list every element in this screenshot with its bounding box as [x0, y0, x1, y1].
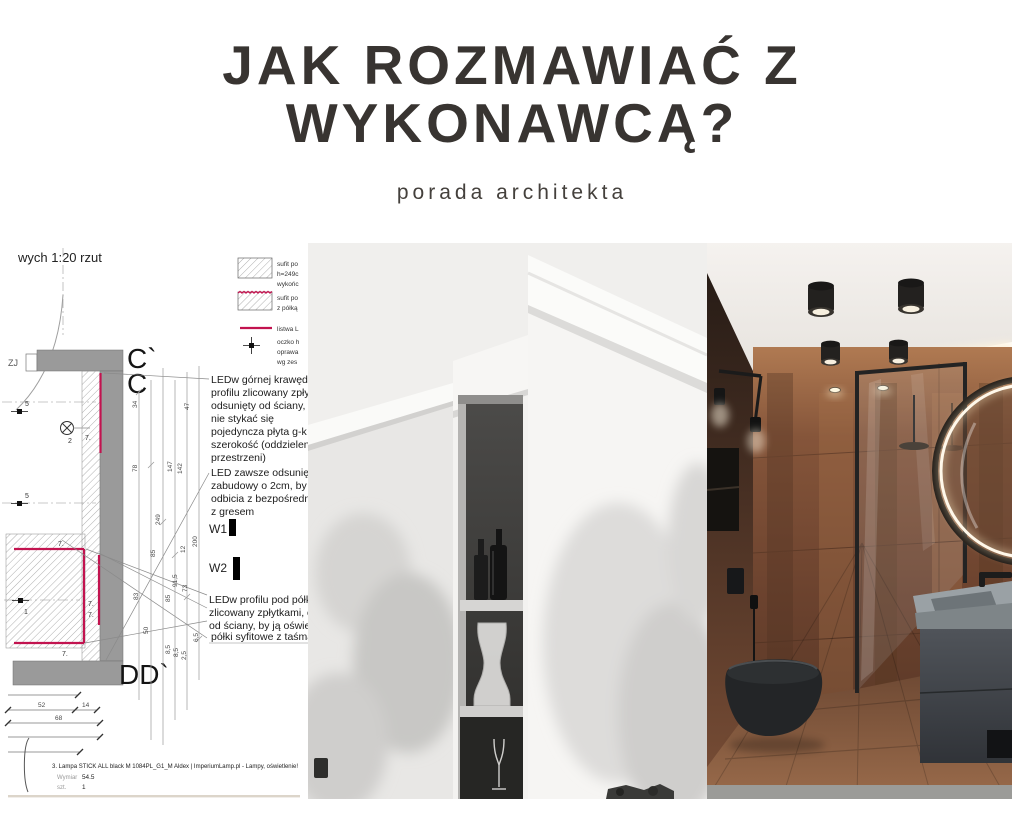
vanity-unit [913, 572, 1012, 763]
ceiling-plan-drawing: wych 1:20 rzut sufit po h=249c wykońc su… [0, 240, 310, 800]
note2-l3: odbicia z bezpośredni [211, 493, 310, 505]
dim-85a: 85 [150, 549, 157, 557]
shelf-board-2 [460, 706, 523, 717]
dim-2-5: 2,5 [181, 651, 188, 660]
dim-147: 147 [167, 461, 174, 472]
annotation-note-3: LEDw profilu pod półką, zlicowany zpłytk… [209, 594, 310, 643]
ceiling-spotlight-1 [808, 282, 834, 318]
caption-qty-value: 1 [82, 784, 86, 791]
tile-label-4: 7. [88, 612, 94, 619]
legend-item1-l2: h=249c [277, 271, 299, 278]
dim-8-5a: 8,5 [165, 645, 172, 654]
dim-83: 83 [133, 592, 140, 600]
lamp-label: 2 [68, 438, 72, 445]
ceiling-spotlight-4 [889, 340, 908, 365]
dim-14: 14 [82, 702, 90, 709]
legend-item1-l1: sufit po [277, 261, 298, 268]
wall-vertical-bar [100, 371, 123, 661]
wall-mark-w1-bar [229, 519, 236, 536]
dim-85b: 85 [165, 594, 172, 602]
caption-dim-value: 54.5 [82, 774, 95, 781]
dim-68: 68 [55, 715, 63, 722]
wall-bottom-band [13, 661, 123, 685]
title-line-1: JAK ROZMAWIAĆ Z [222, 34, 801, 96]
legend-item1-l3: wykońc [276, 281, 299, 288]
tile-label-1: 7. [85, 435, 91, 442]
wall-mark-w2-bar [233, 557, 240, 580]
note1-l3: odsunięty od ściany, b [211, 400, 310, 412]
drawing-scale-label: wych 1:20 rzut [17, 250, 102, 265]
wall-mark-w1: W1 [209, 522, 227, 536]
ceiling-plan-svg: wych 1:20 rzut sufit po h=249c wykońc su… [0, 240, 310, 800]
drawing-legend: sufit po h=249c wykońc sufit po z półką … [238, 258, 300, 366]
legend-item3-l1: listwa L [277, 326, 299, 333]
shelf-niche [458, 395, 523, 799]
spot-label-3: 1 [24, 609, 28, 616]
note2-l2: zabudowy o 2cm, by u [211, 480, 310, 492]
flush-plate [727, 568, 744, 594]
caption-dim-label: Wymiar [57, 775, 77, 781]
sheet-edge [8, 795, 300, 797]
annotation-note-2: LED zawsze odsunięty zabudowy o 2cm, by … [211, 467, 310, 518]
bathroom-render [707, 243, 1012, 799]
shelf-board-1 [460, 600, 523, 611]
title-line-2: WYKONAWCĄ? [286, 92, 738, 154]
niche-head [458, 395, 523, 404]
dim-249: 249 [155, 514, 162, 525]
dim-73: 73 [182, 584, 189, 592]
spot-label-1: 5 [25, 401, 29, 408]
wall-end-notch [26, 354, 37, 371]
dim-34: 34 [132, 400, 139, 408]
legend-item4-l2: oprawa [277, 349, 299, 356]
dim-6-5: 6,5 [193, 633, 200, 642]
note1-l1: LEDw górnej krawędzi [211, 374, 310, 386]
dim-78: 78 [132, 464, 139, 472]
note2-l1: LED zawsze odsunięty [211, 467, 310, 479]
note1-l4: nie stykać się [211, 413, 274, 425]
page-title: JAK ROZMAWIAĆ Z WYKONAWCĄ? [0, 36, 1024, 153]
wall-mark-w2: W2 [209, 561, 227, 575]
annotation-note-1: LEDw górnej krawędzi profilu zlicowany z… [211, 374, 310, 464]
suspended-ceiling-area [6, 534, 85, 648]
legend-item2-l2: z półką [277, 305, 298, 312]
tile-label-5: 7. [62, 651, 68, 658]
legend-item4-l3: wg zes [276, 359, 298, 366]
note3-l1: LEDw profilu pod półką, [209, 594, 310, 606]
dim-8-5b: 8,5 [173, 648, 180, 657]
dim-47: 47 [184, 402, 191, 410]
ceiling-spot-symbol-1 [11, 409, 28, 414]
legend-item4-l1: oczko h [277, 339, 300, 346]
electrical-box [314, 758, 328, 778]
spot-label-2: 5 [25, 493, 29, 500]
legend-item2-l1: sufit po [277, 295, 298, 302]
section-mark-dd: DD` [119, 659, 169, 690]
legend-hatch-swatch [238, 258, 272, 278]
tile-label-2: 7. [58, 541, 64, 548]
legend-hatch-red-swatch [238, 292, 272, 310]
construction-site-photo [308, 243, 707, 799]
ceiling-spotlight-2 [898, 279, 924, 315]
legend-led-edge [238, 292, 272, 294]
niche-lower [460, 717, 523, 799]
ceiling-spotlight-3 [821, 341, 840, 366]
edge-label: ZJ [8, 358, 18, 368]
cabinet-recess [987, 730, 1012, 758]
caption-bracket [24, 738, 29, 792]
dim-12: 12 [180, 545, 187, 553]
note1-l7: przestrzeni) [211, 452, 266, 464]
dim-91-5: 91,5 [172, 574, 179, 587]
poster: JAK ROZMAWIAĆ Z WYKONAWCĄ? porada archit… [0, 0, 1024, 819]
note1-l5: pojedyncza płyta g-k 1 [211, 426, 310, 438]
ceiling-spot-symbol-2 [11, 501, 28, 506]
door-swing-symbol [16, 248, 63, 410]
dim-52: 52 [38, 702, 46, 709]
bathroom-render-svg [707, 243, 1012, 799]
lamp-caption: 3. Lampa STICK ALL black M 1084PL_G1_M A… [52, 763, 298, 770]
dim-200: 200 [192, 536, 199, 547]
image-collage: wych 1:20 rzut sufit po h=249c wykońc su… [0, 240, 1024, 805]
dim-50: 50 [143, 626, 150, 634]
note2-l4: z gresem [211, 506, 254, 518]
dim-142: 142 [177, 463, 184, 474]
photo-bottom-band [707, 785, 1012, 799]
construction-photo-svg [308, 243, 707, 799]
note1-l2: profilu zlicowany zpłytk [211, 387, 310, 399]
tile-label-3: 7. [88, 601, 94, 608]
page-subtitle: porada architekta [0, 181, 1024, 205]
legend-spot-icon [243, 337, 260, 354]
caption-qty-label: szt. [57, 785, 67, 791]
poster-header: JAK ROZMAWIAĆ Z WYKONAWCĄ? porada archit… [0, 36, 1024, 205]
wall-top-bar [37, 350, 123, 371]
note1-l6: szerokość (oddzielenie [211, 439, 310, 451]
note3-l2: zlicowany zpłytkami, od [209, 607, 310, 619]
note3-l4: półki syfitowe z taśman [211, 631, 310, 643]
